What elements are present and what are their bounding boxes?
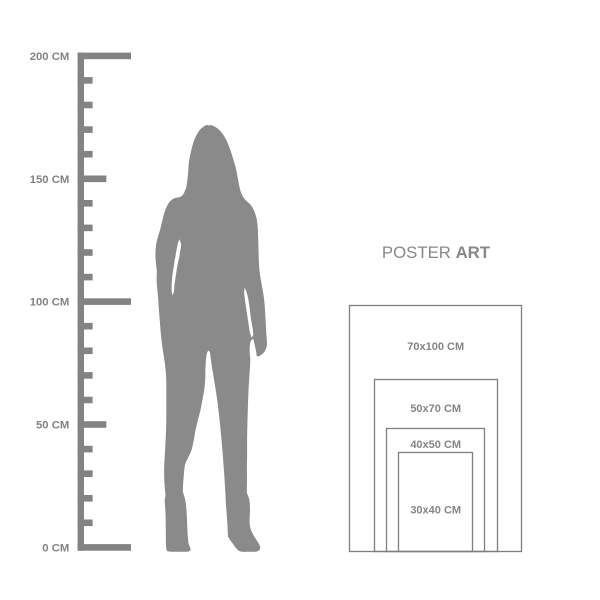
svg-text:70x100 CM: 70x100 CM: [407, 341, 464, 353]
svg-text:POSTER ART: POSTER ART: [382, 243, 491, 262]
svg-text:0 CM: 0 CM: [42, 543, 69, 555]
svg-text:50 CM: 50 CM: [36, 420, 69, 432]
svg-text:50x70 CM: 50x70 CM: [410, 403, 461, 415]
svg-text:30x40 CM: 30x40 CM: [410, 504, 461, 516]
svg-text:100 CM: 100 CM: [30, 297, 70, 309]
svg-text:200 CM: 200 CM: [30, 51, 70, 63]
svg-text:40x50 CM: 40x50 CM: [410, 439, 461, 451]
svg-text:150 CM: 150 CM: [30, 174, 70, 186]
